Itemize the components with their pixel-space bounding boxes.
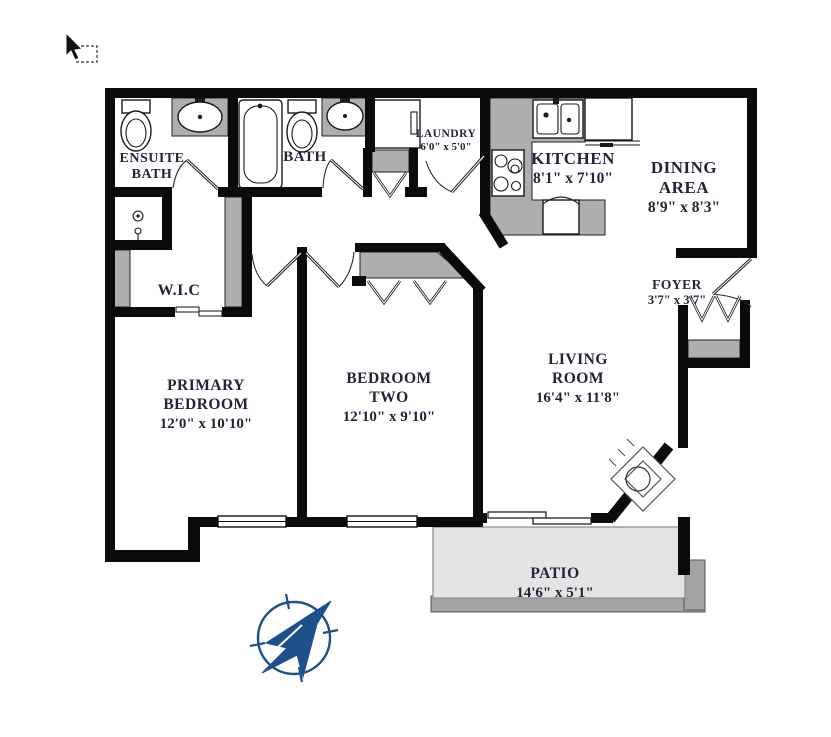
living-room-label-1: LIVING [548, 351, 608, 368]
bifold-door-icon [716, 296, 740, 320]
kitchen-dims: 8'1" x 7'10" [533, 170, 613, 187]
bypass-door-icon [176, 307, 222, 316]
wall-ensuite-bath-divider [228, 88, 238, 188]
wall-kitchen-west [480, 88, 490, 216]
wall-b2closet-top [355, 243, 445, 252]
window-icon [218, 516, 286, 527]
wall-right-outer [747, 88, 757, 258]
bathtub-icon [239, 100, 282, 188]
door-swing-icon [252, 253, 301, 286]
wall-linen-left [363, 148, 372, 197]
ensuite-bath-label-2: BATH [132, 167, 173, 182]
wall-dining-bottom [676, 248, 757, 258]
foyer-label: FOYER [652, 277, 702, 292]
foyer-closet-shelf [688, 340, 740, 358]
dining-label-2: AREA [659, 178, 709, 197]
dishwasher-icon [543, 197, 579, 234]
wall-top [105, 88, 757, 98]
door-swing-icon [323, 160, 363, 189]
door-swing-icon [306, 252, 354, 287]
bedroom-two-label-2: TWO [369, 389, 408, 406]
toilet-icon [287, 100, 317, 152]
kitchen-sink-icon [533, 96, 583, 138]
toilet-icon [121, 100, 151, 151]
foyer-dims: 3'7" x 3'7" [648, 293, 706, 307]
wall-hall-c [252, 187, 322, 197]
cursor-overlay [66, 33, 97, 62]
wall-hall-d [405, 187, 427, 197]
stove-icon [492, 150, 524, 196]
wall-step-bottom [105, 550, 197, 562]
wall-bedroom-divider [297, 247, 307, 527]
wic-label: W.I.C [158, 282, 201, 299]
bedroom-two-dims: 12'10" x 9'10" [343, 409, 436, 425]
shower-icon [112, 194, 164, 243]
door-swing-icon [426, 156, 484, 192]
bath-label: BATH [283, 149, 326, 165]
floor-plan-canvas: ENSUITE BATH BATH LAUNDRY 6'0" x 5'0" KI… [0, 0, 831, 737]
living-room-dims: 16'4" x 11'8" [536, 390, 620, 406]
wall-wic-right [242, 187, 252, 317]
ensuite-bath-label-1: ENSUITE [120, 151, 185, 166]
laundry-label: LAUNDRY [416, 128, 477, 140]
wall-foyer-closet-right [740, 300, 750, 368]
window-icon [347, 516, 417, 527]
compass-north-arrow-icon [250, 594, 338, 682]
dining-dims: 8'9" x 8'3" [648, 199, 720, 216]
wall-hall-a [105, 187, 172, 197]
wall-shower-bottom [105, 240, 172, 250]
laundry-dims: 6'0" x 5'0" [420, 141, 471, 153]
wall-patio-right [678, 517, 690, 575]
patio-dims: 14'6" x 5'1" [516, 585, 594, 601]
wall-wic-bottom-right [222, 307, 252, 317]
wall-left [105, 88, 115, 562]
wall-living-east [678, 305, 688, 448]
bifold-door-icon [368, 281, 400, 303]
wall-wic-bottom-left [105, 307, 175, 317]
wall-foyer-closet-bottom [678, 358, 750, 368]
wall-bedroom2-living-divider [473, 288, 483, 517]
bedroom-two-label-1: BEDROOM [346, 370, 431, 387]
fridge-icon [585, 98, 640, 147]
wall-b2closet-stub [352, 276, 366, 286]
primary-bedroom-dims: 12'0" x 10'10" [160, 416, 253, 432]
bifold-door-icon [374, 173, 406, 196]
dining-label-1: DINING [651, 158, 717, 177]
sliding-door-icon [487, 511, 591, 525]
patio-label: PATIO [530, 565, 579, 582]
floor-plan-drawing: ENSUITE BATH BATH LAUNDRY 6'0" x 5'0" KI… [0, 0, 831, 737]
bifold-door-icon [414, 281, 446, 303]
primary-bedroom-label-2: BEDROOM [163, 396, 248, 413]
linen-closet-shelf [372, 150, 409, 172]
washer-icon [372, 100, 420, 148]
wall-bath-laundry-divider [365, 88, 375, 152]
primary-bedroom-label-1: PRIMARY [167, 377, 245, 394]
openings [218, 511, 591, 527]
wic-closet-rail-right [225, 197, 242, 307]
wic-closet-rail-left [113, 250, 130, 307]
kitchen-label: KITCHEN [531, 149, 615, 168]
living-room-label-2: ROOM [552, 370, 604, 387]
